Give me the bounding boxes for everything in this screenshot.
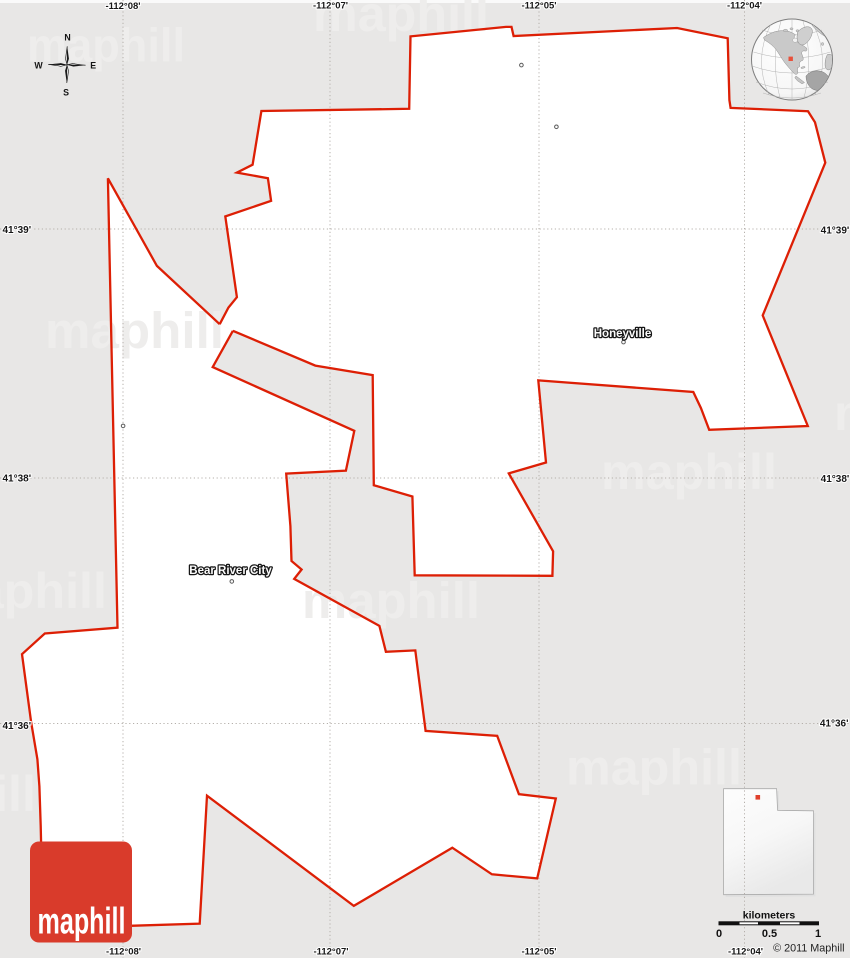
svg-text:41°39': 41°39' [821, 225, 850, 236]
svg-text:maphill: maphill [0, 766, 36, 822]
svg-text:maphill: maphill [45, 302, 224, 359]
svg-text:S: S [63, 87, 69, 97]
svg-text:-112°07': -112°07' [313, 946, 348, 957]
svg-text:0: 0 [716, 928, 722, 940]
svg-text:maphill: maphill [302, 572, 480, 629]
svg-text:Bear River City: Bear River City [189, 565, 272, 577]
svg-text:maphill: maphill [27, 19, 185, 72]
svg-text:Honeyville: Honeyville [594, 328, 652, 340]
svg-text:maphill: maphill [38, 901, 126, 942]
svg-text:kilometers: kilometers [743, 910, 796, 922]
svg-text:-112°05': -112°05' [521, 1, 556, 12]
svg-text:-112°04': -112°04' [727, 1, 762, 12]
svg-text:41°36': 41°36' [3, 721, 32, 732]
svg-text:N: N [64, 33, 70, 43]
svg-text:41°39': 41°39' [3, 225, 32, 236]
svg-text:maphill: maphill [601, 444, 777, 500]
svg-text:1: 1 [815, 928, 821, 940]
svg-text:W: W [34, 60, 43, 70]
svg-text:© 2011 Maphill: © 2011 Maphill [773, 943, 844, 955]
svg-text:-112°08': -112°08' [105, 1, 140, 12]
svg-text:41°38': 41°38' [3, 474, 32, 485]
svg-text:maphill: maphill [566, 740, 742, 796]
svg-text:-112°05': -112°05' [521, 946, 556, 957]
svg-text:-112°04': -112°04' [728, 946, 763, 957]
svg-text:maphill: maphill [834, 385, 850, 441]
svg-text:-112°07': -112°07' [313, 1, 348, 12]
svg-text:E: E [90, 60, 96, 70]
svg-text:41°36': 41°36' [820, 719, 849, 730]
svg-text:0.5: 0.5 [762, 928, 777, 940]
svg-text:maphill: maphill [0, 563, 107, 619]
svg-text:-112°08': -112°08' [106, 946, 141, 957]
svg-text:41°38': 41°38' [821, 474, 850, 485]
